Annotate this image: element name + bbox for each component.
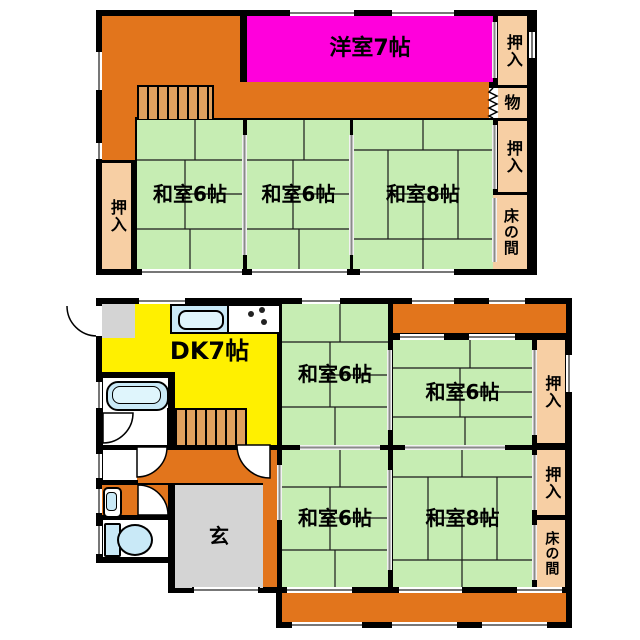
wall-closet1-bottom <box>537 443 565 450</box>
wall-dk-bottom <box>102 445 243 450</box>
room-label-washitsu6-ne: 和室6帖 <box>393 340 532 445</box>
backdoor-arc <box>67 306 97 336</box>
room-label-tokonoma: 床の間 <box>537 520 565 587</box>
room-label-washitsu6-mid: 和室6帖 <box>247 120 350 269</box>
room-label-oshiire: 押入 <box>498 16 527 85</box>
stove <box>227 304 281 334</box>
room-label-oshiire: 押入 <box>537 450 565 515</box>
window <box>566 353 572 394</box>
room-label-washitsu6-left: 和室6帖 <box>137 120 243 269</box>
floor1-back-porch <box>102 304 135 338</box>
sliding-door <box>285 587 354 593</box>
room-label-oshiire: 押入 <box>102 163 131 269</box>
bathtub-inner <box>112 386 161 404</box>
floor1-hall-side <box>263 483 277 587</box>
room-label-western: 洋室7帖 <box>247 16 493 82</box>
window <box>390 622 459 628</box>
window <box>96 380 102 410</box>
room-label-storage: 物 <box>498 88 527 118</box>
room-label-dk: DK7帖 <box>152 336 267 368</box>
floor1-dk-left <box>102 338 135 372</box>
floor1-washroom <box>103 450 137 480</box>
floor1-staircase <box>175 408 247 449</box>
room-label-washitsu6-nw: 和室6帖 <box>282 304 388 445</box>
wall-genkan-left <box>168 483 175 593</box>
window <box>137 298 187 304</box>
window <box>140 269 244 275</box>
window <box>96 452 102 480</box>
floor1-outside-notch <box>96 563 168 593</box>
room-label-washitsu8: 和室8帖 <box>353 120 493 269</box>
window <box>96 524 102 556</box>
room-label-tokonoma: 床の間 <box>493 195 527 269</box>
window <box>487 298 527 304</box>
floor2-hall-corridor <box>210 82 489 118</box>
room-label-oshiire: 押入 <box>537 340 565 443</box>
window <box>96 487 102 515</box>
wash-basin-bowl <box>106 492 117 511</box>
floor1-veranda-bottom <box>282 593 566 622</box>
room-label-washitsu8-se: 和室8帖 <box>393 450 532 587</box>
room-label-oshiire: 押入 <box>498 121 527 192</box>
sliding-door <box>515 587 564 593</box>
window <box>96 141 102 161</box>
kitchen-sink <box>178 310 224 330</box>
window <box>290 622 364 628</box>
window <box>250 269 349 275</box>
wall-toilet-bottom <box>96 557 168 563</box>
toilet-bowl <box>117 524 153 556</box>
floor1-hall-doorway <box>243 445 270 450</box>
floor2-hall-left <box>102 117 135 160</box>
floor2-storage-door-strip <box>489 88 498 118</box>
window <box>529 30 535 60</box>
window <box>480 622 549 628</box>
floor1-veranda-top <box>393 304 566 333</box>
window <box>96 50 102 92</box>
window <box>410 298 456 304</box>
wall-stairs-left <box>167 408 175 445</box>
floor2-staircase <box>137 85 214 121</box>
room-label-genkan: 玄 <box>175 485 263 588</box>
wall-washroom <box>102 480 138 485</box>
wall-bath-top <box>102 372 175 378</box>
floor-plan: 洋室7帖 和室6帖 和室6帖 和室8帖 押入 物 押入 床の間 押入 DK7帖 … <box>0 0 640 640</box>
room-label-washitsu6-sw: 和室6帖 <box>282 450 388 587</box>
sliding-door <box>397 587 464 593</box>
backdoor-opening <box>96 306 102 336</box>
floor1-hall <box>137 450 282 483</box>
window <box>358 269 456 275</box>
